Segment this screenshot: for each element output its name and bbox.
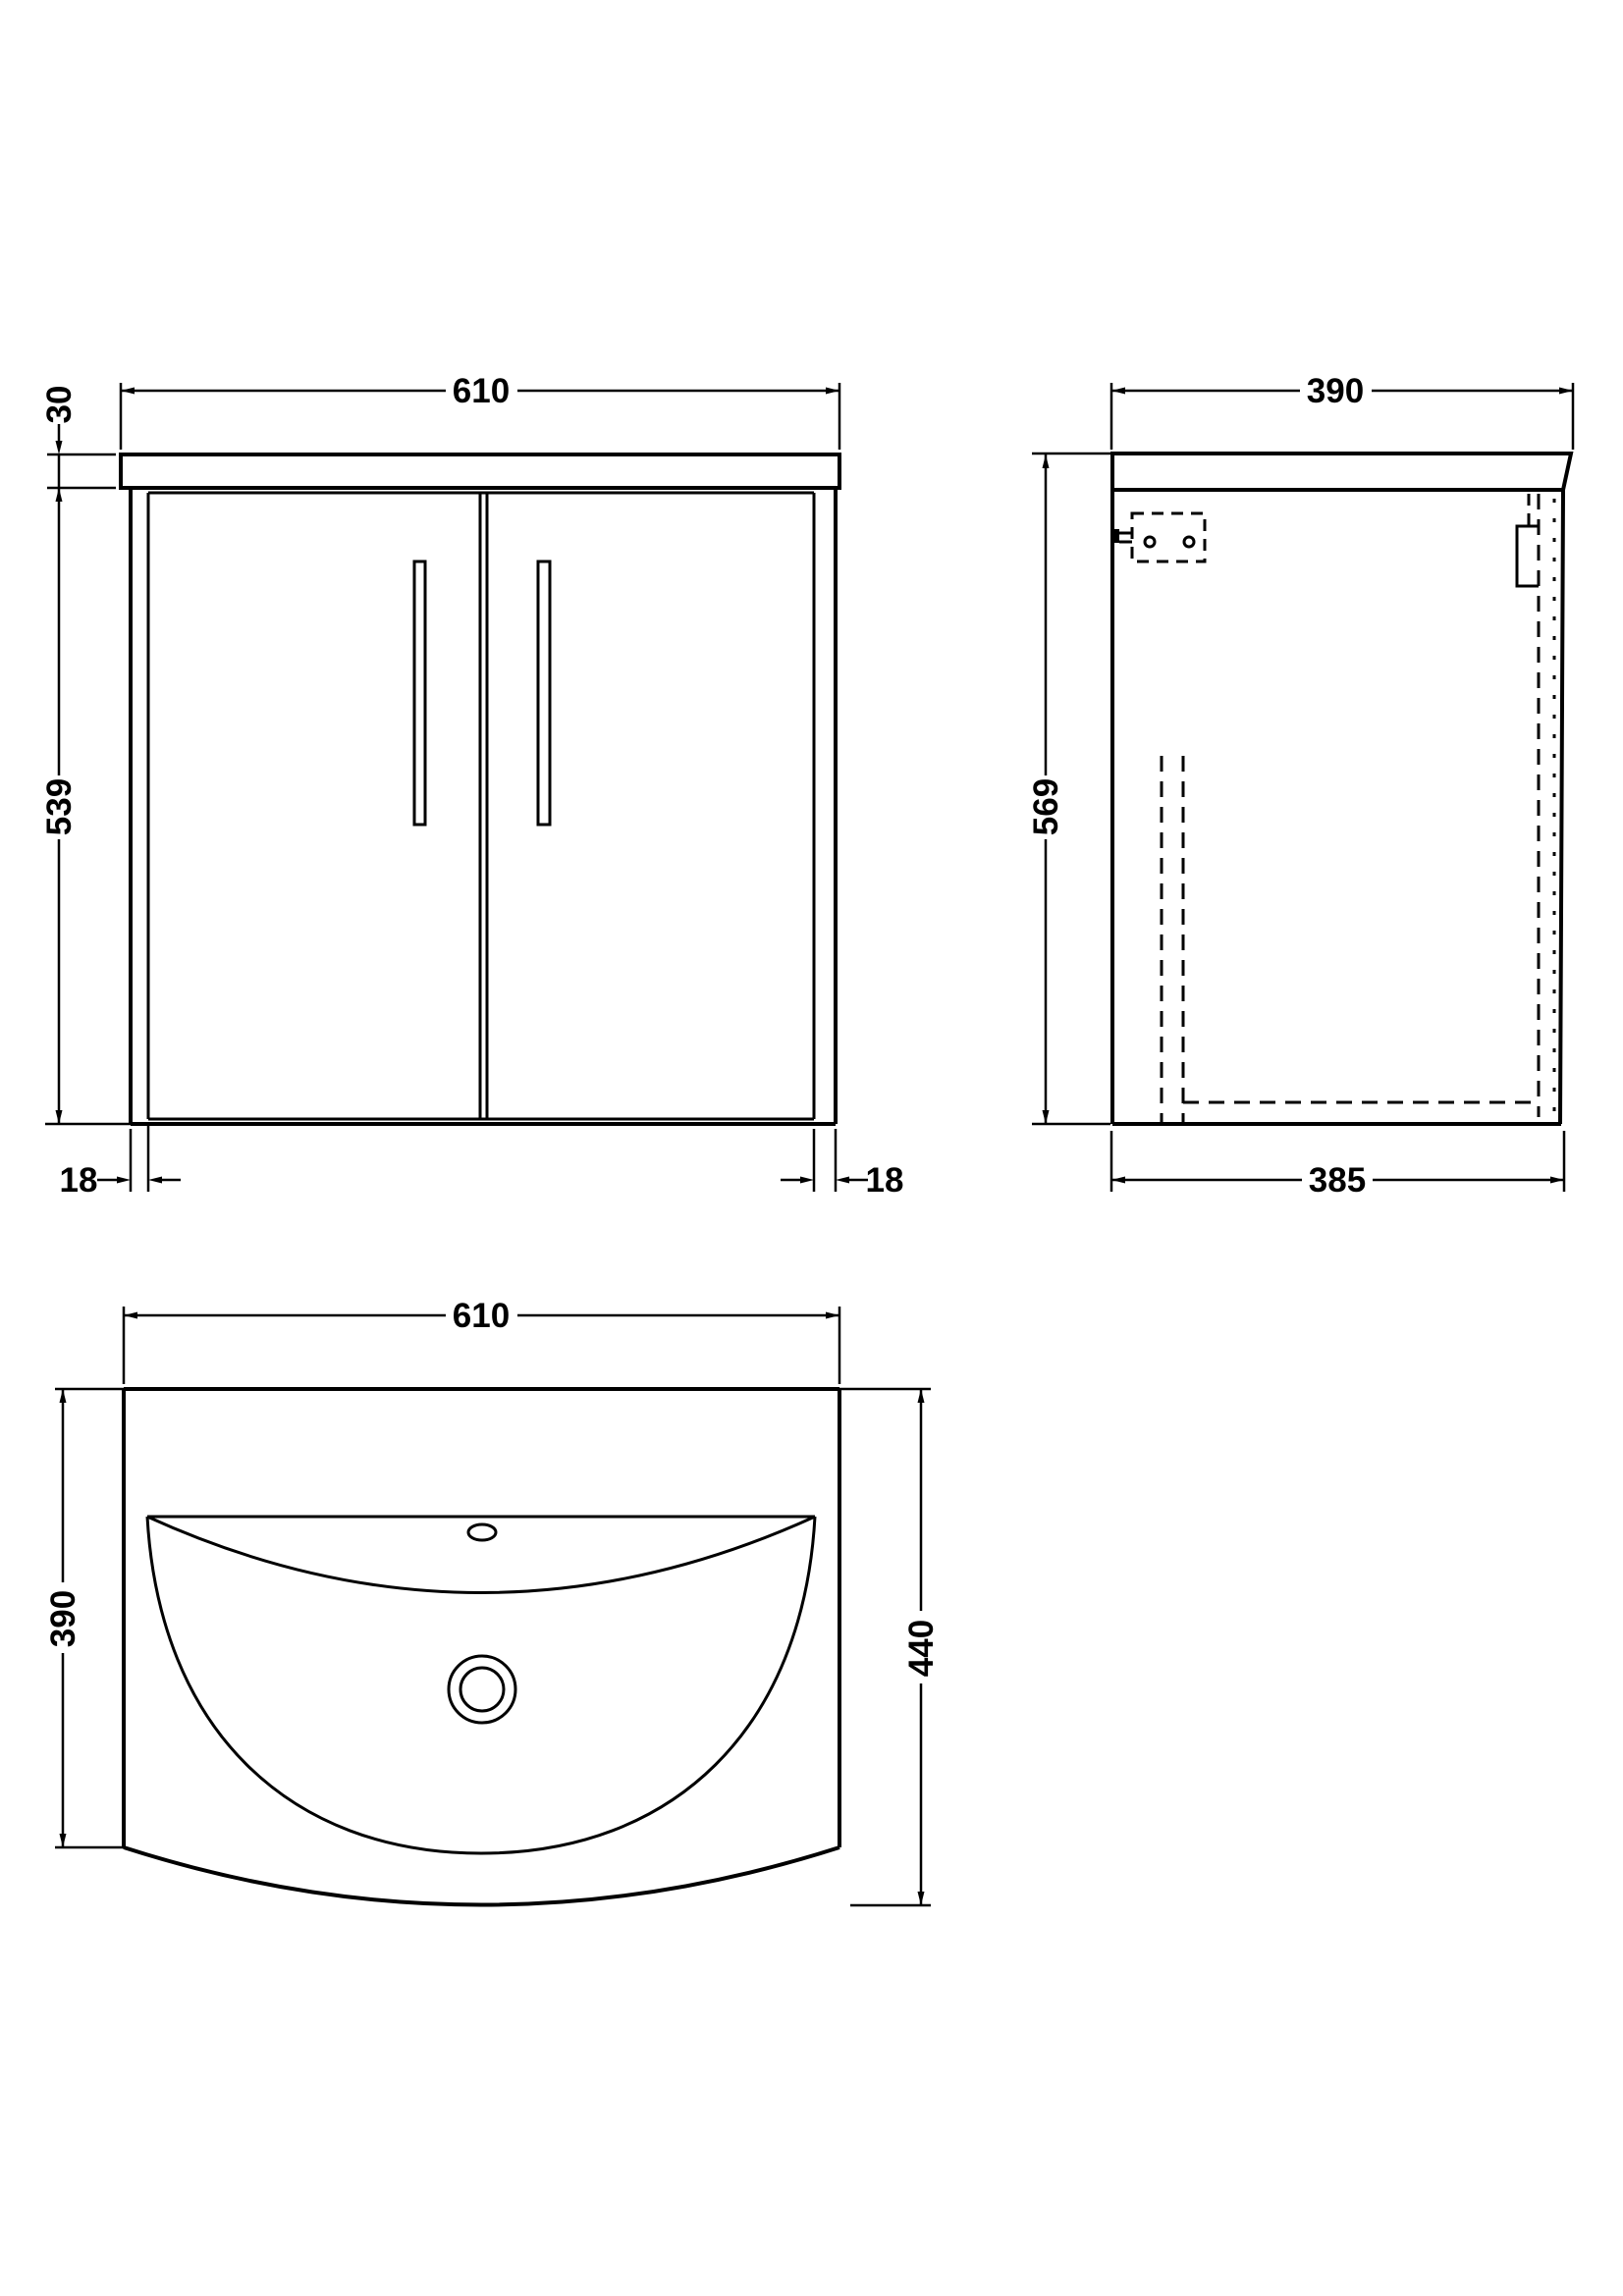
plan-basin-outline <box>124 1389 839 1847</box>
plan-width-label: 610 <box>453 1297 510 1335</box>
side-height-dimension: 569 <box>1027 454 1110 1124</box>
plan-drain-waste <box>449 1656 515 1723</box>
front-view: 610 30 539 <box>40 372 903 1200</box>
front-left-panel-label: 18 <box>60 1161 98 1200</box>
side-hinge-plate <box>1517 526 1539 586</box>
side-depth-dimension: 390 <box>1111 372 1573 450</box>
side-height-label: 569 <box>1027 778 1065 835</box>
plan-tap-hole <box>468 1524 496 1540</box>
front-right-panel-dimension: 18 <box>781 1129 903 1200</box>
front-height-label: 539 <box>40 778 79 835</box>
plan-overall-depth-label: 440 <box>902 1620 941 1677</box>
side-countertop-profile <box>1112 454 1571 490</box>
plan-depth-label: 390 <box>44 1590 82 1647</box>
side-depth-label: 390 <box>1307 372 1364 410</box>
plan-basin-front-curve <box>124 1847 839 1905</box>
side-bracket-screw-hole-left <box>1145 537 1155 547</box>
side-wall-clip <box>1110 529 1119 543</box>
side-view: 390 569 <box>1027 372 1573 1200</box>
front-door-handle-left <box>414 561 425 825</box>
front-width-dimension: 610 <box>121 372 839 450</box>
front-door-handle-right <box>538 561 550 825</box>
vanity-technical-drawing: 610 30 539 <box>0 0 1623 2296</box>
side-bottom-depth-label: 385 <box>1309 1161 1366 1200</box>
front-cabinet-outline <box>131 488 836 1124</box>
side-cabinet-outline <box>1112 490 1563 1124</box>
front-counter-thickness-dimension: 30 <box>40 386 116 488</box>
plan-width-dimension: 610 <box>124 1297 839 1384</box>
front-counter-thickness-label: 30 <box>40 386 79 424</box>
side-bottom-depth-dimension: 385 <box>1111 1131 1564 1200</box>
side-hidden-internal-lines <box>1162 756 1537 1124</box>
front-countertop <box>121 454 839 488</box>
plan-view: 610 390 440 <box>44 1297 941 1905</box>
front-height-dimension: 539 <box>40 488 131 1124</box>
side-bracket-screw-hole-right <box>1184 537 1194 547</box>
plan-basin-inner-rim-curve <box>147 1517 815 1593</box>
drawing-sheet: 610 30 539 <box>0 0 1623 2296</box>
front-width-label: 610 <box>453 372 510 410</box>
front-left-panel-dimension: 18 <box>60 1124 181 1200</box>
side-wall-bracket <box>1110 513 1205 561</box>
plan-basin-bowl-curve <box>147 1517 815 1853</box>
front-right-panel-label: 18 <box>866 1161 904 1200</box>
plan-overall-depth-dimension: 440 <box>839 1389 941 1905</box>
plan-depth-dimension: 390 <box>44 1389 124 1847</box>
front-door-center-gap <box>480 493 487 1119</box>
